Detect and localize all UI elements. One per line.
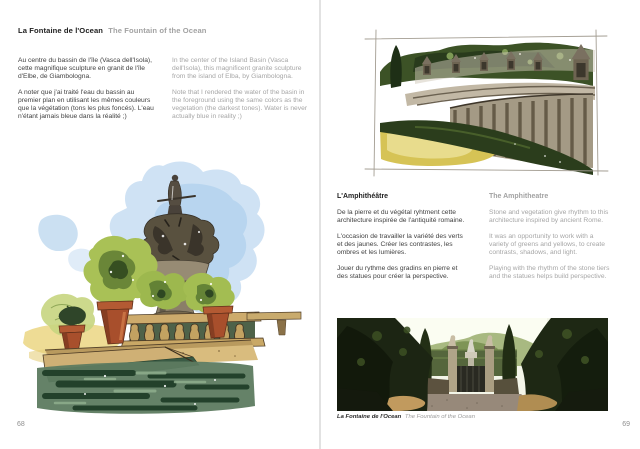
french-column: De la pierre et du végétal ryhtment cett… [337,209,470,289]
left-page-text-columns: Au centre du bassin de l'île (Vasca dell… [18,57,310,129]
paragraph-en-1: In the center of the Island Basin (Vasca… [172,57,310,81]
section-title-french: L'Amphithéâtre [337,193,388,200]
right-page-text-columns: De la pierre et du végétal ryhtment cett… [337,209,613,289]
amphitheatre-sketch-illustration [355,28,625,178]
page-gutter-line [319,0,321,449]
photo-caption-french: La Fontaine de l'Ocean [337,414,401,420]
book-spread: La Fontaine de l'Ocean The Fountain of t… [0,0,640,449]
garden-alley-photo [337,318,608,411]
french-column: Au centre du bassin de l'île (Vasca dell… [18,57,158,129]
paragraph-fr-3: Jouer du rythme des gradins en pierre et… [337,265,470,281]
section-title-english: The Amphitheatre [489,193,548,200]
paragraph-en-3: Playing with the rhythm of the stone tie… [489,265,613,281]
page-title-english: The Fountain of the Ocean [108,26,206,35]
page-number-left: 68 [17,421,25,428]
english-column: Stone and vegetation give rhythm to this… [489,209,613,289]
paragraph-fr-2: A noter que j'ai traité l'eau du bassin … [18,89,158,121]
english-column: In the center of the Island Basin (Vasca… [172,57,310,129]
paragraph-en-1: Stone and vegetation give rhythm to this… [489,209,613,225]
page-number-right: 69 [608,421,630,428]
photo-caption-english: The Fountain of the Ocean [405,414,475,420]
page-title-french: La Fontaine de l'Ocean [18,26,103,35]
paragraph-fr-1: Au centre du bassin de l'île (Vasca dell… [18,57,158,81]
fountain-watercolor-illustration [15,156,305,418]
paragraph-en-2: It was an opportunity to work with a var… [489,233,613,257]
page-title: La Fontaine de l'Ocean The Fountain of t… [18,26,207,35]
photo-caption: La Fontaine de l'Ocean The Fountain of t… [337,414,475,420]
paragraph-en-2: Note that I rendered the water of the ba… [172,89,310,121]
paragraph-fr-2: L'occasion de travailler la variété des … [337,233,470,257]
paragraph-fr-1: De la pierre et du végétal ryhtment cett… [337,209,470,225]
